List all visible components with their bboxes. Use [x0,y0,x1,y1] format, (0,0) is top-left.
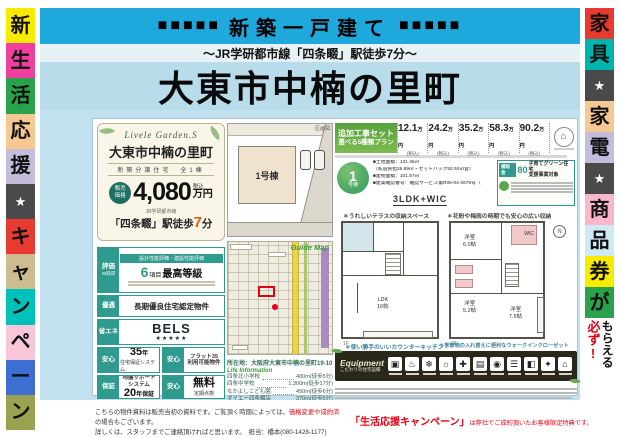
unit-details: ■土地面積：131.45㎡ （私道負担26.89㎡・セットバック52.92㎡含）… [373,160,481,188]
room-label-1: 洋室 6.0帖 [463,235,476,248]
strip-char: 電 [585,132,614,163]
badge-bels: 省エネ BELS ★★★★★ [97,319,225,345]
leaf-icon [499,181,509,191]
map-road [304,242,307,354]
station-access: 「四条畷」駅徒歩7分 [102,215,220,230]
detail-line: ■土地面積：131.45㎡ [373,160,481,167]
text-line [525,373,538,375]
evaluation-header: 設計性能評価・建設性能評価 [120,254,223,263]
strip-char: 援 [6,149,35,184]
equipment-item: ☰ [507,357,521,375]
kitchen-counter [357,283,358,313]
price-badge: 販売 価格 [109,182,131,204]
strip-char: 品 [585,225,614,256]
rail-line-label: JR学研都市線 [102,208,220,215]
right-gift-strip: 家 具 ★ 家 電 ★ 商 品 券 が 必ず! もらえる [585,8,614,430]
badge-longlife: 優遇 長期優良住宅認定物件 [97,295,225,317]
price-tax: (税込) [498,152,510,157]
option-label-1: 追加工事セット [338,129,394,139]
price-num: 24.2 [428,123,447,134]
equipment-item: ▤ [473,357,487,375]
medical-icon: ✚ [456,357,470,371]
monitor-icon: ◉ [490,357,504,371]
page-title: 大東市中楠の里町 [40,62,580,110]
strip-char: 応 [6,114,35,149]
warranty-label: 住宅保証システム [120,359,158,373]
tag-subtext: W取得 [102,271,115,276]
star-icon: ★ [6,184,35,219]
text-line [335,397,572,399]
plan-note-bottom-right: ＊季節物の入れ替えに便利なウォークインクローゼット [439,342,569,349]
strip-bottom-note: 必ず! もらえる [585,318,614,430]
unit-suffix: 号棟 [348,183,358,188]
equipment-item: ✚ [456,357,470,375]
warranty-years: 35 [130,347,142,358]
strip-char: 活 [6,78,35,113]
map-chip [230,244,252,250]
option-prices: 12.1万円(税込) 24.2万円(税込) 35.2万円(税込) 58.3万円(… [397,123,549,153]
text-line [559,373,572,375]
text-line [335,392,577,394]
text-line [457,373,470,375]
badge-flat35: 安心 フラット35 利用可能物件 [162,347,225,373]
entrance-icon: ⌂ [558,357,572,371]
equipment-title-block: Equipment こだわりの住宅設備 [340,359,384,373]
price-unit: 税込 万円 [193,185,213,201]
strip-char: ン [6,289,35,324]
equipment-item: ⌂ [558,357,572,375]
footer-disclaimer: こちらの物件資料は販売当初の資料です。ご覧頂く時期によっては、価格変更や成約済の… [95,408,340,438]
flyer-page: 新 生 活 応 援 ★ キ ャ ン ペ ー ン 家 具 ★ 家 電 ★ 商 品 … [0,0,620,438]
evaluation-grade: 6 項目 最高等級 [141,264,203,280]
strip-char: 商 [585,194,614,225]
site-road [228,222,332,236]
subsidy-title: 子育てグリーン住宅 支援事業対象 [528,162,573,179]
kanarazu-text: 必ず! [586,320,600,430]
house-stamp-icon: ⌂ [554,127,574,147]
badge-tag: 安心 [98,348,119,372]
property-name: 大東市中楠の里町 [102,142,220,161]
detail-line: ■建物面積：101.67㎡ [373,174,481,181]
campaign-name: 「生活応援キャンペーン」 [350,417,470,428]
strip-char: が [585,287,614,318]
text-line [542,373,555,375]
detail-line: （私道負担26.89㎡・セットバック52.92㎡含） [373,167,481,174]
price-tax: (税込) [468,152,480,157]
campaign-condition: は弊社でご成約頂いたお客様限定特典です。 [470,420,593,427]
right-column: 追加工事セット 選べる5種類プラン 12.1万円(税込) 24.2万円(税込) … [335,123,577,393]
option-price: 58.3万円(税込) [488,123,518,153]
equipment-item: ♨ [405,357,419,375]
price-tax: (税込) [437,152,449,157]
plan-note-top-right: ＊花粉や梅雨の時期でも安心の広い収納 [447,211,551,220]
property-address: 所在地：大阪府大東市中楠の里町19-10 [227,358,333,367]
equipment-item: ❄ [422,357,436,375]
price-num: 35.2 [459,123,478,134]
map-railway [321,248,329,348]
map-chip [232,345,248,350]
property-subtitle: 新築分譲住宅 全1棟 [108,163,214,176]
left-campaign-strip: 新 生 活 応 援 ★ キ ャ ン ペ ー ン [6,8,35,430]
wall [451,259,501,260]
heater-icon: ☼ [439,357,453,371]
equipment-item: ☼ [439,357,453,375]
warranty-unit: 年 [142,351,148,357]
badge-tag: 安心 [163,376,184,398]
wall [373,223,374,251]
wall [403,223,404,275]
unit-number-badge: 1 号棟 [337,162,369,194]
unit-number: 1 [349,169,357,183]
free-label: 無料 [193,378,215,389]
campaign-notice: 「生活応援キャンペーン」は弊社でご成約頂いたお客様限定特典です。 [350,412,578,430]
life-info-item: 四条中学校1,300m(徒歩17分) [227,381,333,388]
option-price: 90.2万円(税込) [519,123,549,153]
room-label-wic: WIC [524,231,534,237]
star-icon: ★ [585,163,614,194]
option-price: 24.2万円(税込) [427,123,457,153]
equipment-icons: ▣ ♨ ❄ ☼ ✚ ▤ ◉ ☰ ◧ ✦ ⌂ [388,357,572,375]
poi-name: 四条中学校 [227,381,255,388]
poi-distance: 1,300m(徒歩17分) [288,381,333,388]
text-line [511,182,573,184]
badge-row-4: 安心 35年 住宅保証システム 安心 フラット35 利用可能物件 [97,347,225,373]
terrace [363,331,433,338]
guide-map: Guide Map [227,241,333,355]
detail-line: ■建築確認番号：確認サービス第R05-04-2679号（R5年11月29日） [373,181,481,188]
strip-char: 生 [6,43,35,78]
badge-tag: 評価 W取得 [98,248,119,292]
equipment-item: ◧ [524,357,538,375]
certification-badges: 評価 W取得 設計性能評価・建設性能評価 6 項目 最高等級 [97,247,225,399]
site-road [298,123,333,237]
option-label-2: 選べる5種類プラン [338,139,394,147]
dots [273,394,294,395]
disclaimer-red: 価格変更や成約済 [289,409,339,416]
strip-char: ャ [6,254,35,289]
bels-stars: ★★★★★ [156,335,188,342]
badge-warranty35: 安心 35年 住宅保証システム [97,347,160,373]
closet [455,279,473,288]
text-line [511,191,573,193]
disclaimer-line-2: 詳しくは、スタッフまでご連絡頂ければと思います。 担当：橋本(080-1428-… [95,428,340,438]
equipment-item: ◉ [490,357,504,375]
badge-tag: 安心 [163,348,184,372]
star-icon: ★ [585,70,614,101]
banner-squares-right: ■■■■■ [399,17,462,35]
strip-char: 家 [585,101,614,132]
room-label-3: 洋室 7.5帖 [509,307,522,320]
option-price: 12.1万円(税込) [397,123,427,153]
strip-char: キ [6,219,35,254]
wall [451,293,543,294]
unit-info-row: 1 号棟 ■土地面積：131.45㎡ （私道負担26.89㎡・セットバック52.… [335,160,577,208]
subsidy-header: 補助金 80 子育てグリーン住宅 支援事業対象 [499,162,573,179]
wall [343,275,437,276]
tag-text: 省エネ [99,328,119,336]
text-line [511,188,573,190]
ground-unit: 年保証 [136,392,154,398]
subsidy-fineprint [511,181,573,195]
staircase [505,263,519,287]
left-column: Livele Garden.S 大東市中楠の里町 新築分譲住宅 全1棟 販売 価… [97,123,225,393]
grade-number: 6 [141,264,149,280]
text-line [335,388,577,390]
badge-row-3: 省エネ BELS ★★★★★ [97,319,225,345]
grade-text: 最高等級 [162,265,202,280]
text-line [128,281,216,283]
text-line [511,185,573,187]
bathroom-area [343,223,373,251]
plan-note-bottom-left: ＊使い勝手のいいカウンターキッチン [345,342,444,351]
price-row: 販売 価格 4,080 税込 万円 [102,178,220,207]
site-plan: 1号棟 区画図 [227,123,333,237]
stamp-area: ⌂ [549,123,577,153]
tag-text: 優遇 [102,302,115,310]
top-banner: ■■■■■ 新築一戸建て ■■■■■ [40,8,580,44]
subsidy-amount: 80 [517,165,527,175]
strip-char: ペ [6,325,35,360]
badge-ground-support: 保証 地盤サポート システム 20年保証 [97,375,160,399]
car-icon [314,150,325,170]
map-target-marker [258,286,275,297]
ground-years: 20 [124,387,136,399]
wall [343,251,403,252]
equipment-item: ✦ [541,357,555,375]
floor-plan-2f: WIC 洋室 6.0帖 洋室 5.2帖 洋室 7.5帖 [449,221,545,339]
compass-icon: N [553,225,566,238]
option-set-label: 追加工事セット 選べる5種類プラン [335,123,397,153]
text-line [423,373,436,375]
disclaimer-line-1: こちらの物件資料は販売当初の資料です。ご覧頂く時期によっては、価格変更や成約済の… [95,408,340,428]
badge-row-5: 保証 地盤サポート システム 20年保証 安心 無料 定期点検 [97,375,225,399]
shelf-icon: ☰ [507,357,521,371]
price-man: 万円 [193,190,213,200]
closet [455,265,473,274]
badge-tag: 省エネ [98,320,119,344]
price-num: 12.1 [398,123,417,134]
tag-text: 安心 [102,356,115,364]
grade-suffix: 項目 [149,270,161,279]
disclaimer-post: の場合もございます。 [95,419,157,426]
equipment-subtitle: こだわりの住宅設備 [340,368,384,373]
footer: こちらの物件資料は販売当初の資料です。ご覧頂く時期によっては、価格変更や成約済の… [40,400,580,438]
strip-char: 新 [6,8,35,43]
car-icon [300,150,311,170]
text-line [474,373,487,375]
strip-char: 具 [585,39,614,70]
banner-squares-left: ■■■■■ [158,17,221,35]
middle-column: 1号棟 区画図 Guide Map 所在地：大阪府大東市中楠の里町19-10 L… [227,123,333,393]
walk-minutes: 7 [194,214,202,231]
subsidy-body [499,181,573,195]
window-icon: ◧ [524,357,538,371]
text-line [128,284,216,286]
bels-title: BELS [152,322,191,335]
floor-layout-label: 3LDK+WIC [393,194,447,206]
tag-text: 保証 [102,383,115,391]
floor-plan-1f: LDK 16帖 [341,221,439,339]
option-price-header: 追加工事セット 選べる5種類プラン 12.1万円(税込) 24.2万円(税込) … [335,123,577,153]
equipment-bar: Equipment こだわりの住宅設備 ▣ ♨ ❄ ☼ ✚ ▤ ◉ ☰ ◧ ✦ … [335,351,577,381]
disclaimer-pre: こちらの物件資料は販売当初の資料です。ご覧頂く時期によっては、 [95,409,289,416]
plan-note-top-left: ＊うれしいテラスの収納スペース [343,211,429,220]
badge-tag: 保証 [98,376,119,398]
tag-text: 安心 [167,383,180,391]
subsidy-box: 補助金 80 子育てグリーン住宅 支援事業対象 [497,160,575,206]
balcony [537,297,544,333]
text-line [554,148,574,150]
storage-icon: ▤ [473,357,487,371]
strip-char: ー [6,360,35,395]
map-pin-icon [272,304,278,310]
staircase [385,253,401,275]
text-line [440,373,453,375]
option-price: 35.2万円(税込) [458,123,488,153]
banner-title: 新築一戸建て [229,12,391,41]
text-line [406,373,419,375]
light-icon: ✦ [541,357,555,371]
guide-map-label: Guide Map [291,243,329,252]
moraeru-text: もらえる [601,320,614,430]
tag-text: 安心 [167,356,180,364]
kitchen-icon: ▣ [388,357,402,371]
badge-free-inspection: 安心 無料 定期点検 [162,375,225,399]
text-line [491,373,504,375]
aircon-icon: ❄ [422,357,436,371]
station-pre: 「四条畷」駅徒歩 [110,218,194,230]
longlife-title: 長期優良住宅認定物件 [134,301,209,312]
equipment-item: ▣ [388,357,402,375]
strip-char: 家 [585,8,614,39]
site-lot: 1号棟 [238,146,296,204]
brand-logo: Livele Garden.S [102,130,220,140]
station-post: 分 [202,218,213,230]
bath-icon: ♨ [405,357,419,371]
map-road [292,242,299,354]
price-num: 90.2 [520,123,539,134]
badge-row-1: 評価 W取得 設計性能評価・建設性能評価 6 項目 最高等級 [97,247,225,293]
dots [257,387,287,388]
badge-row-2: 優遇 長期優良住宅認定物件 [97,295,225,317]
room-label-2: 洋室 5.2帖 [463,301,476,314]
price-tax: (税込) [407,152,419,157]
site-plan-label: 区画図 [315,125,330,132]
inspection-label: 定期点検 [194,390,214,397]
wall [501,223,502,293]
property-card: Livele Garden.S 大東市中楠の里町 新築分譲住宅 全1棟 販売 価… [97,123,225,241]
badge-tag: 優遇 [98,296,119,316]
price-value: 4,080 [133,178,191,207]
text-line [508,373,521,375]
subsidy-chip: 補助金 [499,163,516,177]
badge-evaluation: 評価 W取得 設計性能評価・建設性能評価 6 項目 最高等級 [97,247,225,293]
map-chip [268,252,286,257]
room-label-ldk: LDK 16帖 [377,297,389,310]
price-num: 58.3 [489,123,508,134]
content-card: Livele Garden.S 大東市中楠の里町 新築分譲住宅 全1棟 販売 価… [92,118,578,396]
text-line [389,373,402,375]
price-tax: (税込) [528,152,540,157]
flat35-label: フラット35 利用可能物件 [187,354,220,366]
strip-char: 券 [585,256,614,287]
strip-char: ン [6,395,35,430]
